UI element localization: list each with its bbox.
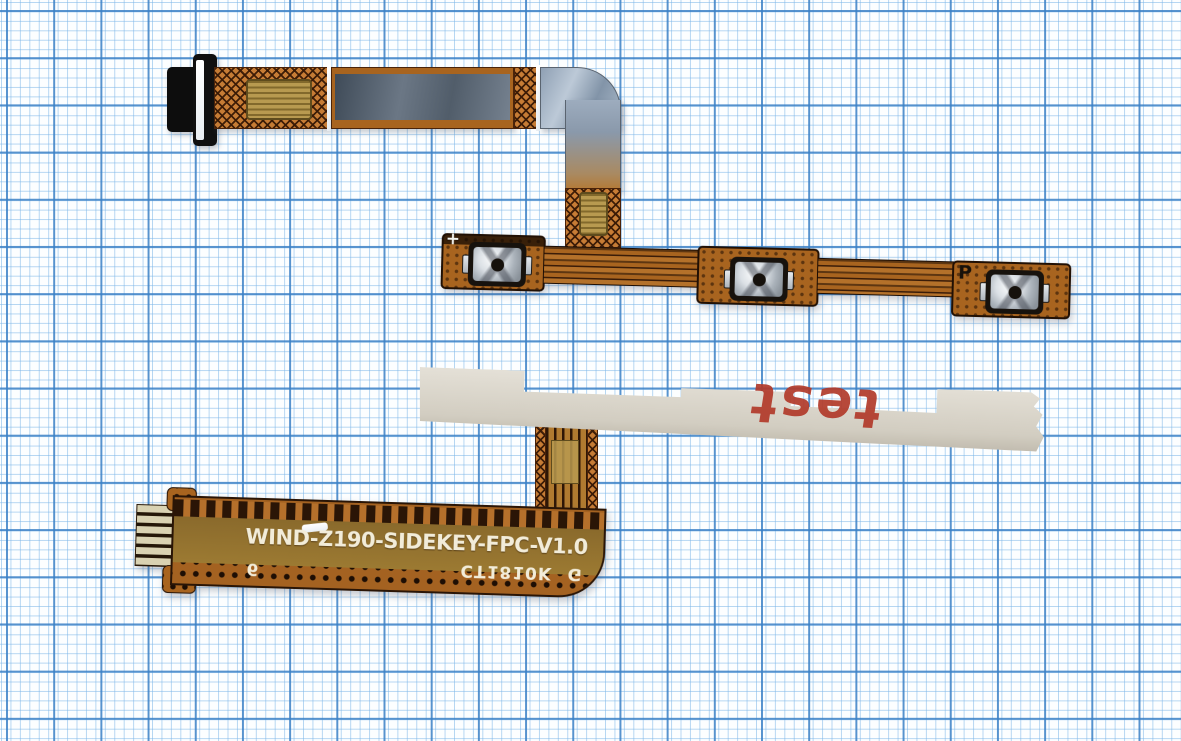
bottom-ribbon: WIND-Z190-SIDEKEY-FPC-V1.0 CT1810K G 6 (134, 488, 607, 611)
silkscreen-batch-suffix: G (567, 564, 582, 584)
vertical-ribbon (535, 418, 598, 510)
bottom-flex-cable: test WIND-Z190-SIDEKEY-FPC-V1.0 CT1810K … (0, 0, 1181, 741)
handwritten-test-mark: test (718, 373, 911, 436)
photo-canvas: { "scene": { "description": "Product pho… (0, 0, 1181, 741)
ribbon-main-band: WIND-Z190-SIDEKEY-FPC-V1.0 CT1810K G 6 (170, 495, 607, 599)
ribbon-edge-left (535, 418, 546, 510)
ribbon-edge-right (587, 418, 598, 510)
silkscreen-batch-group: CT1810K G (460, 561, 582, 584)
silkscreen-digit: 6 (246, 559, 258, 576)
ribbon-gold-pad (551, 440, 579, 484)
silkscreen-batch-text: CT1810K (460, 560, 552, 583)
